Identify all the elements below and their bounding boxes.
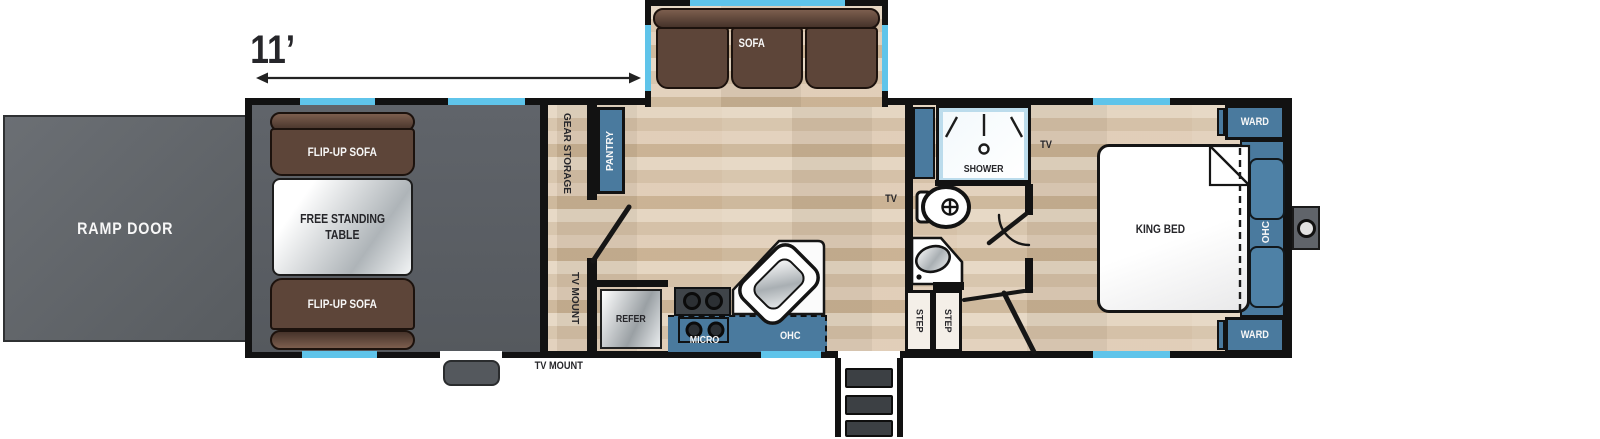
window xyxy=(300,98,375,105)
flip-up-sofa-bottom: FLIP-UP SOFA xyxy=(270,278,415,330)
refrigerator: REFER xyxy=(600,289,662,349)
tv-mount-exterior-text: TV MOUNT xyxy=(535,361,583,372)
window xyxy=(882,25,888,91)
step-2: STEP xyxy=(933,290,962,352)
window xyxy=(1093,98,1170,105)
ohc-bedroom-text: OHC xyxy=(1262,221,1272,243)
floorplan: 11’ RAMP DOOR FLIP-UP SOFA FREE STANDING… xyxy=(0,0,1600,439)
ramp-door-label: RAMP DOOR xyxy=(77,220,173,237)
entry-door-opening xyxy=(838,351,900,358)
stove xyxy=(674,287,731,316)
bath-left-wall xyxy=(905,105,913,290)
micro-text: MICRO xyxy=(689,335,718,346)
ohc-kitchen-label: OHC xyxy=(770,331,810,342)
garage-wall xyxy=(540,105,548,352)
gear-storage-text: GEAR STORAGE xyxy=(561,113,571,194)
tv-mount-exterior-label: TV MOUNT xyxy=(524,361,594,372)
flip-up-sofa-bottom-back xyxy=(270,330,415,350)
garage-door-opening xyxy=(440,351,502,358)
wardrobe-bottom: WARD xyxy=(1225,317,1285,353)
entry-step-tread xyxy=(845,395,893,415)
shower-label: SHOWER xyxy=(964,164,1004,175)
gear-storage-label: GEAR STORAGE xyxy=(553,110,579,196)
window xyxy=(645,25,651,91)
pantry-label: PANTRY xyxy=(606,131,616,171)
pantry-wall xyxy=(587,105,597,200)
ohc-bedroom-label: OHC xyxy=(1255,214,1279,250)
shower-pan: SHOWER xyxy=(943,112,1024,178)
ramp-door: RAMP DOOR xyxy=(3,115,247,342)
entry-steps-rail-left xyxy=(835,357,841,437)
tv-living-text: TV xyxy=(885,194,897,205)
entry-steps-rail-right xyxy=(897,357,903,437)
free-standing-table: FREE STANDING TABLE xyxy=(272,178,413,276)
sofa-back xyxy=(653,8,880,29)
flip-up-sofa-top-label: FLIP-UP SOFA xyxy=(308,146,377,158)
step-1-label: STEP xyxy=(915,309,924,333)
tv-living-label: TV xyxy=(878,194,904,205)
micro-label: MICRO xyxy=(682,335,726,346)
table-label-line1: FREE STANDING xyxy=(300,213,385,226)
tv-mount-interior-label: TV MOUNT xyxy=(561,266,587,330)
flip-up-sofa-top: FLIP-UP SOFA xyxy=(270,128,415,176)
window xyxy=(448,98,525,105)
dimension-text: 11’ xyxy=(250,30,295,70)
window xyxy=(690,0,845,6)
king-bed: KING BED xyxy=(1097,144,1250,313)
dimension-arrow xyxy=(256,73,641,84)
ohc-kitchen-text: OHC xyxy=(780,331,801,342)
tv-bedroom-label: TV xyxy=(1033,140,1059,151)
flip-up-sofa-bottom-label: FLIP-UP SOFA xyxy=(308,298,377,310)
counter-edge xyxy=(597,280,668,287)
pantry: PANTRY xyxy=(597,107,625,194)
sofa-text: SOFA xyxy=(739,39,765,51)
kitchen-wall xyxy=(587,258,597,352)
hitch-pin-box xyxy=(1292,206,1320,250)
entry-step-tread xyxy=(845,368,893,388)
entry-steps xyxy=(835,357,903,437)
shower-bottom-wall xyxy=(935,180,1031,186)
tv-bedroom-text: TV xyxy=(1040,140,1052,151)
hitch-pin-icon xyxy=(1297,219,1316,238)
sofa-cushion-left xyxy=(656,27,729,89)
ward-top-label: WARD xyxy=(1241,117,1269,128)
ward-bottom-tab xyxy=(1217,320,1225,350)
ward-bottom-label: WARD xyxy=(1241,330,1269,341)
ward-top-tab xyxy=(1217,108,1225,136)
tv-mount-interior-text: TV MOUNT xyxy=(569,272,579,324)
window xyxy=(1093,351,1170,358)
table-label-line2: TABLE xyxy=(325,229,359,242)
step-1: STEP xyxy=(905,290,933,352)
king-bed-label: KING BED xyxy=(1136,223,1185,235)
window xyxy=(302,351,377,358)
bed-cabinet-panel-top xyxy=(1249,158,1285,220)
step-2-label: STEP xyxy=(943,309,952,333)
sofa-label: SOFA xyxy=(722,39,782,51)
dimension-label: 11’ xyxy=(246,30,299,70)
bath-cabinet xyxy=(913,107,935,179)
garage-step-box xyxy=(443,360,500,386)
entry-step-tread xyxy=(845,420,893,437)
window xyxy=(761,351,821,358)
sofa-cushion-middle xyxy=(731,27,803,89)
shower: SHOWER xyxy=(936,105,1031,185)
sofa-cushion-right xyxy=(805,27,878,89)
refer-label: REFER xyxy=(616,314,646,325)
bed-cabinet-panel-bottom xyxy=(1249,246,1285,308)
wardrobe-top: WARD xyxy=(1225,105,1285,140)
